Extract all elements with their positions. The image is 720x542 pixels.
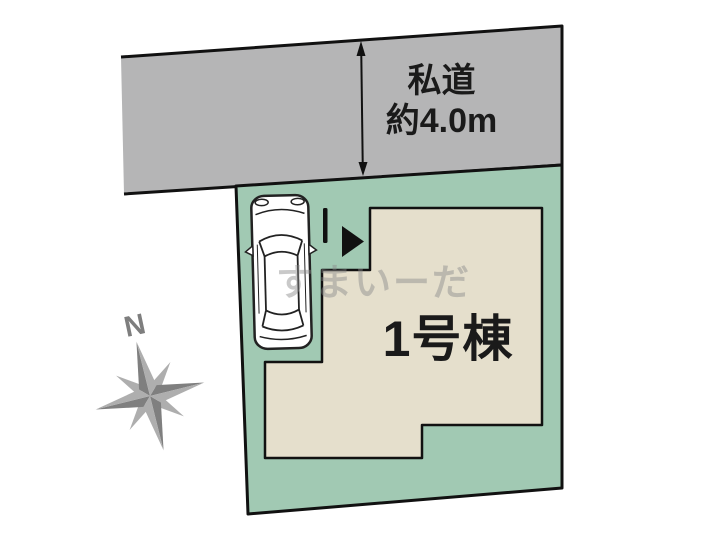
compass-rose-icon: [82, 328, 218, 464]
site-plan-drawing: [0, 0, 720, 542]
car-top-view-icon: [244, 195, 319, 350]
site-plan-canvas: 私道 約4.0m すまいーだ 1号棟 N: [0, 0, 720, 542]
gate-mark: [323, 208, 328, 243]
